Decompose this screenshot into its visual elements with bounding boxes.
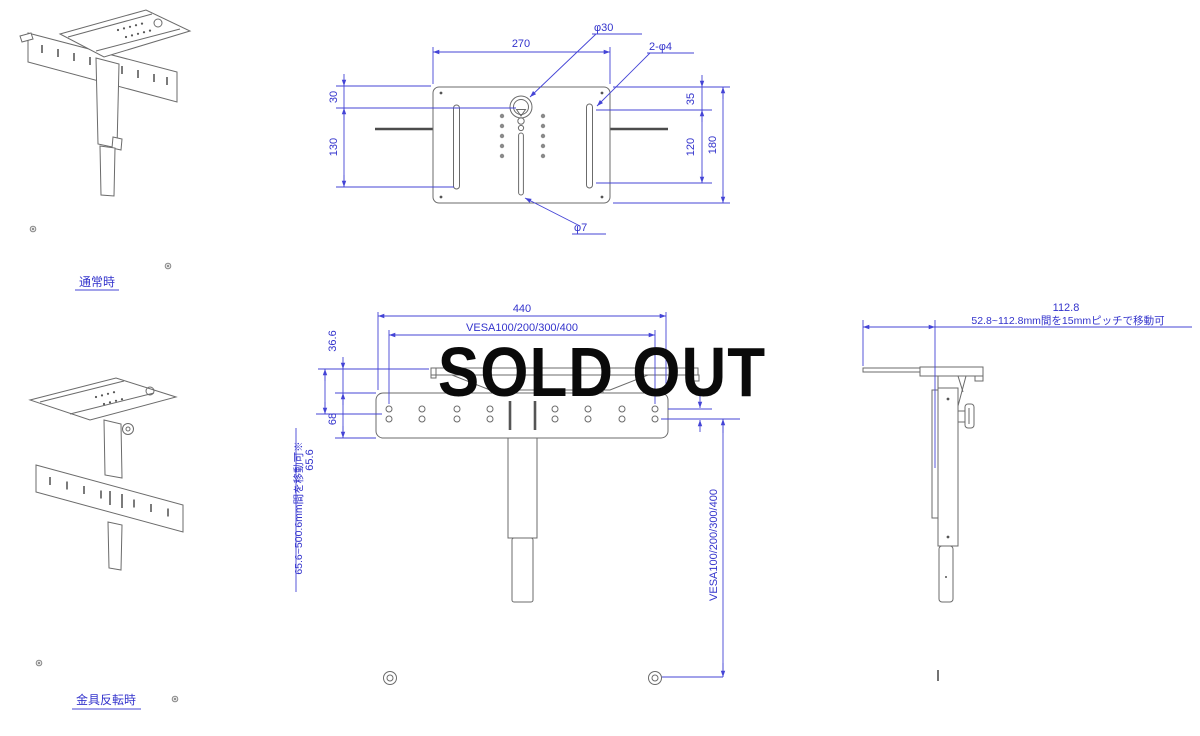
iso-normal-caption: 通常時 (79, 275, 115, 289)
drawing-canvas: 通常時 金具反転時 (0, 0, 1200, 736)
dim-65-6: 65.6 (304, 449, 316, 470)
dim-68: 68 (327, 413, 339, 425)
label-2-phi4: 2-φ4 (649, 41, 672, 53)
pole-lower (512, 538, 533, 602)
iso-normal-view: 通常時 (20, 10, 190, 290)
vesa-bottom-holes (384, 672, 662, 685)
side-view: 112.8 52.8~112.8mm間を15mmピッチで移動可 (863, 302, 1192, 681)
top-view: 270 30 130 35 120 180 φ30 2-φ4 φ7 (328, 22, 730, 234)
dim-440: 440 (513, 303, 531, 315)
dim-130: 130 (328, 138, 340, 156)
dim-120: 120 (685, 138, 697, 156)
label-phi30: φ30 (594, 22, 613, 34)
dim-vesa-vertical: VESA100/200/300/400 (708, 489, 720, 601)
dim-112-8: 112.8 (1053, 302, 1080, 314)
adjust-knob-stem (958, 411, 965, 422)
pole-upper (508, 438, 537, 538)
iso-reversed-caption: 金具反転時 (76, 692, 136, 707)
dim-270: 270 (512, 38, 530, 50)
dim-35: 35 (685, 93, 697, 105)
paper-dots (30, 226, 178, 702)
iso-reversed-view: 金具反転時 (30, 378, 183, 709)
dim-30: 30 (328, 91, 340, 103)
note-drop-range: 65.6~500.6mm間を移動可※ (292, 441, 305, 574)
dim-36-6: 36.6 (327, 330, 339, 351)
note-depth-range: 52.8~112.8mm間を15mmピッチで移動可 (971, 314, 1164, 327)
sold-out-overlay: SOLD OUT (438, 333, 766, 411)
dim-180: 180 (707, 136, 719, 154)
technical-drawing-page: 通常時 金具反転時 (0, 0, 1200, 736)
side-pole-upper (938, 388, 958, 546)
side-pole-lower (939, 546, 953, 602)
